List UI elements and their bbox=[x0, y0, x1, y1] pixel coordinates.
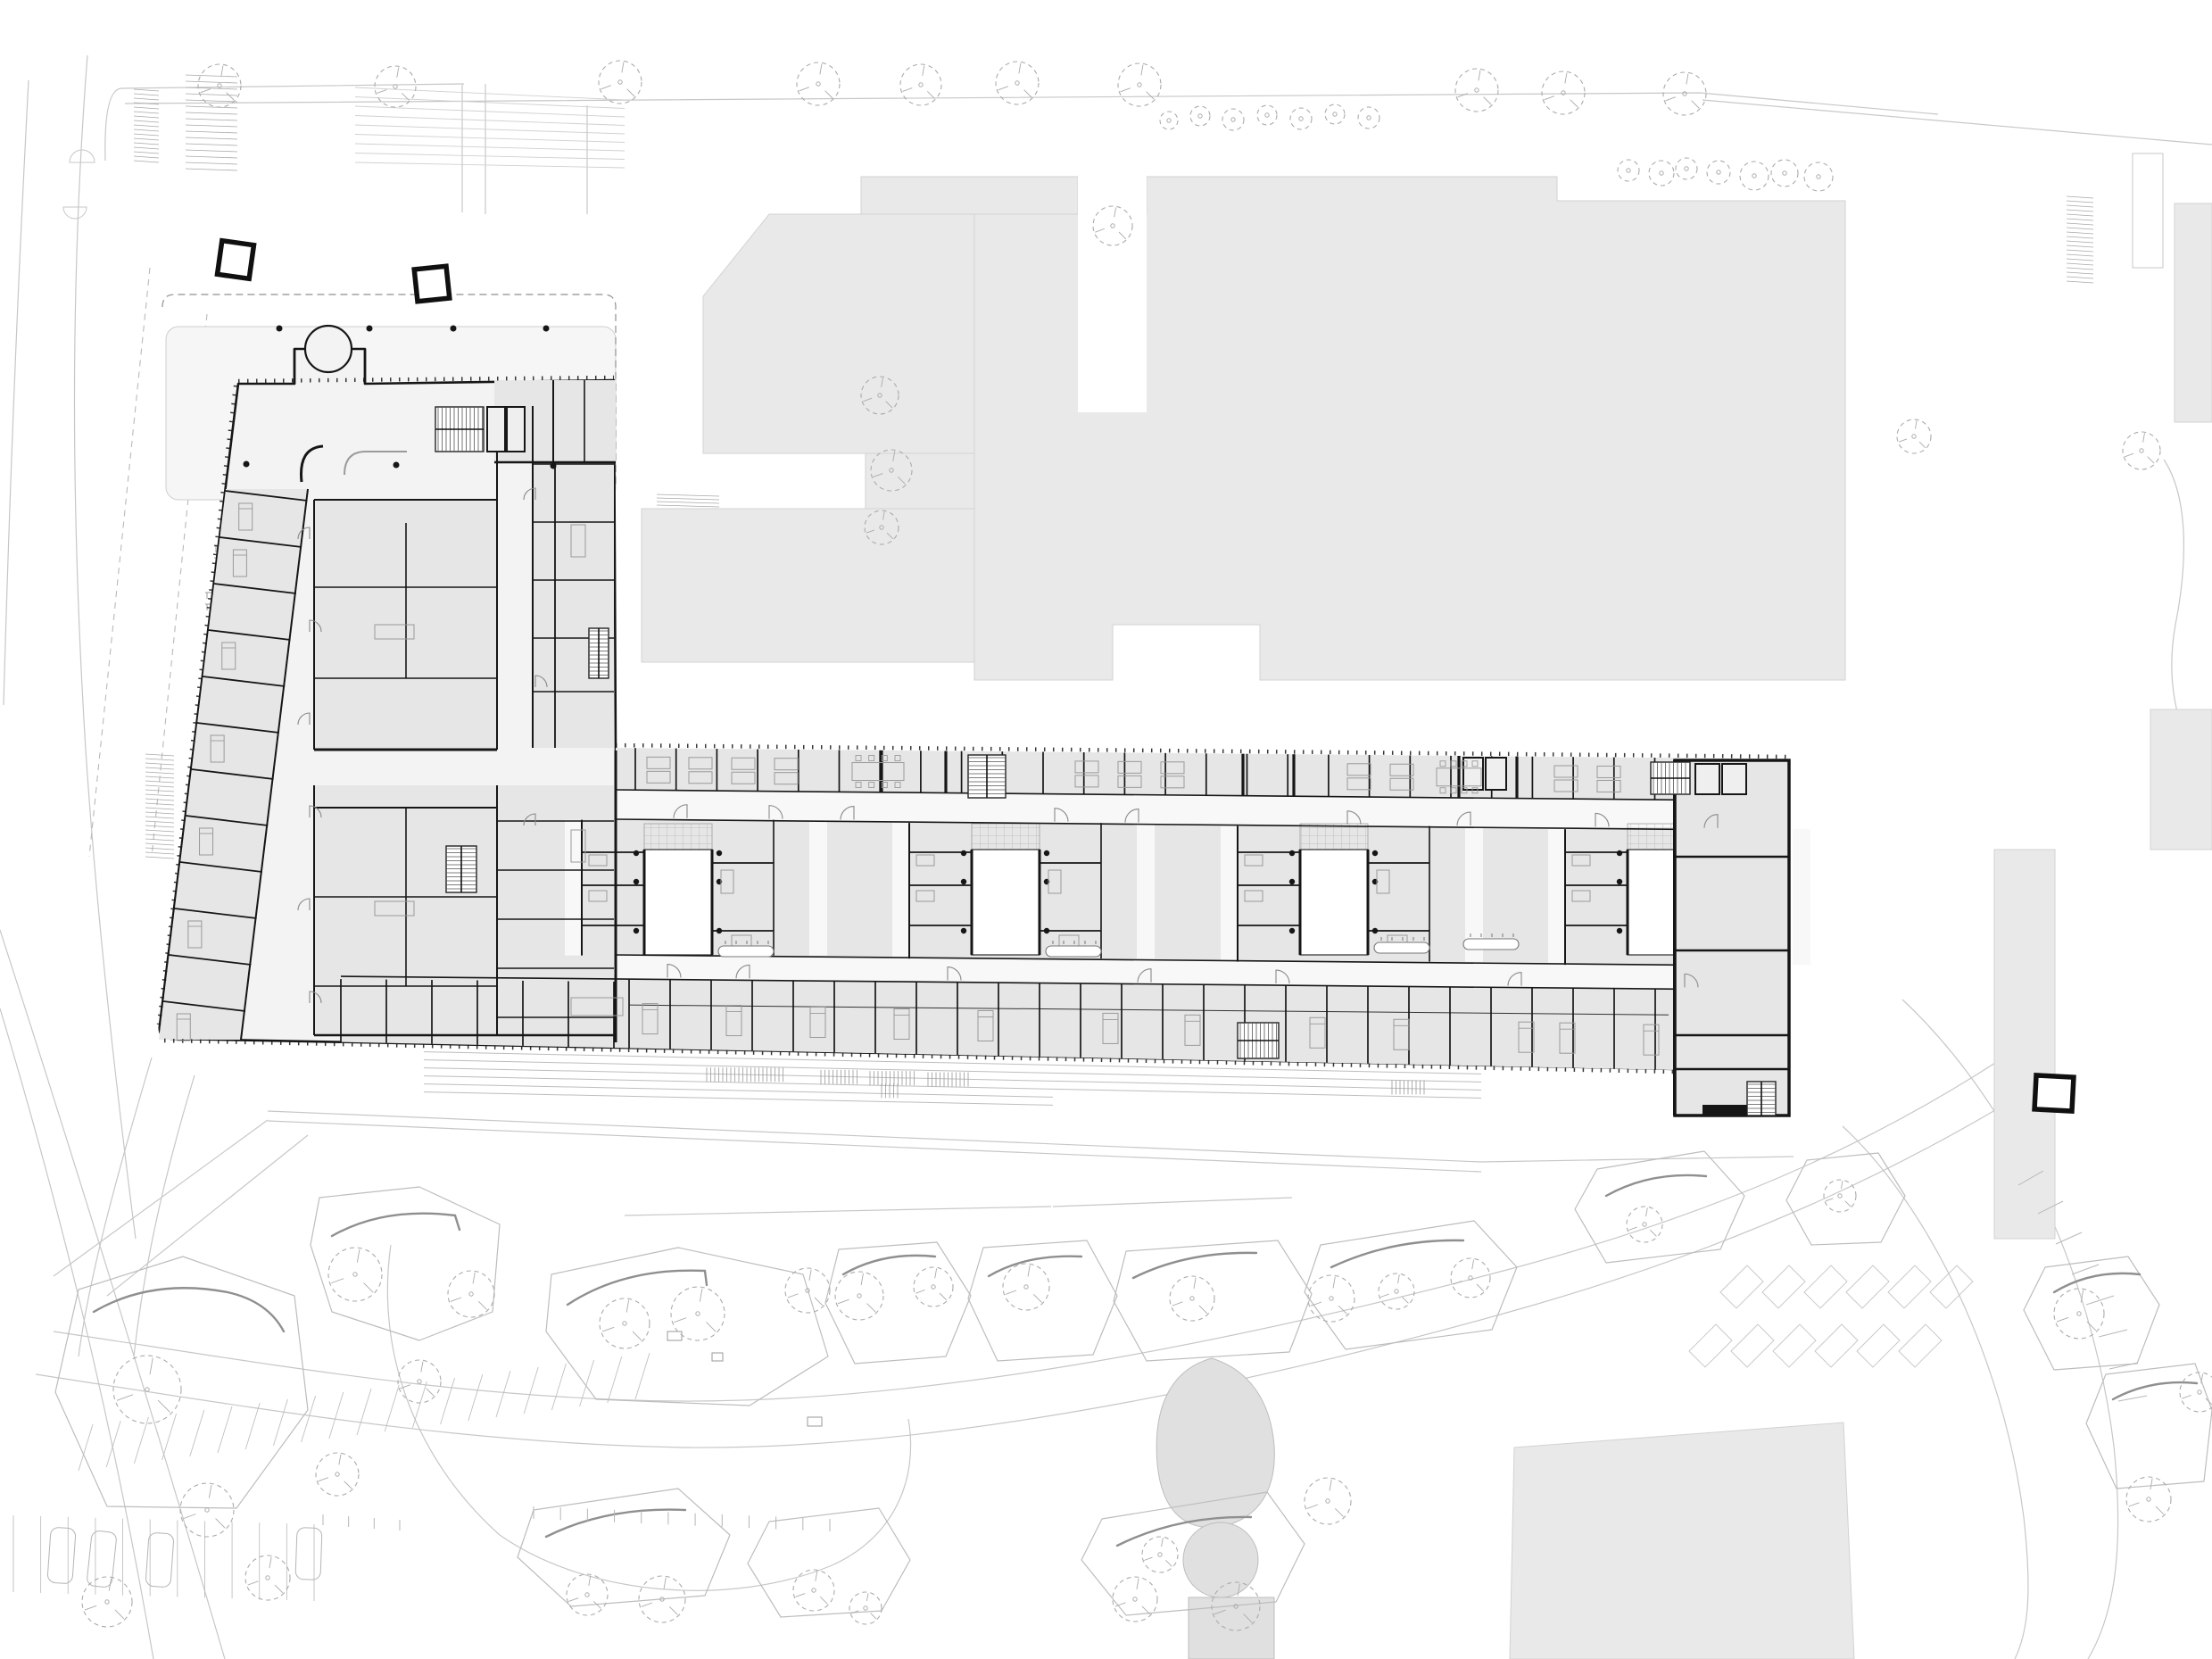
pergola-hatch bbox=[355, 87, 625, 168]
tree-icon bbox=[198, 64, 241, 107]
tree-small-icon bbox=[1649, 161, 1674, 186]
tree-small-icon bbox=[1257, 105, 1277, 125]
ramp-hatch bbox=[134, 89, 159, 162]
elevator bbox=[1695, 764, 1719, 794]
elevator bbox=[1486, 758, 1506, 790]
tree-small-icon bbox=[1222, 109, 1244, 130]
tree-icon bbox=[82, 1577, 132, 1627]
corridor-planter bbox=[1374, 942, 1429, 953]
tree-icon bbox=[398, 1360, 441, 1403]
tree-icon bbox=[849, 1592, 882, 1624]
tree-icon bbox=[900, 64, 941, 105]
tree-small-icon bbox=[1740, 162, 1769, 190]
pavilion-structure bbox=[414, 266, 450, 302]
ramp-hatch bbox=[657, 494, 719, 510]
tree-small-icon bbox=[1618, 160, 1639, 181]
tree-icon bbox=[1305, 1478, 1351, 1524]
corridor-planter bbox=[718, 946, 774, 957]
tree-icon bbox=[2126, 1477, 2171, 1522]
tree-icon bbox=[2123, 432, 2160, 469]
tree-icon bbox=[2054, 1289, 2104, 1339]
tree-small-icon bbox=[1358, 107, 1379, 129]
tree-small-icon bbox=[1290, 108, 1312, 129]
tree-icon bbox=[1824, 1180, 1856, 1212]
tree-icon bbox=[1542, 71, 1585, 114]
tree-icon bbox=[1897, 419, 1931, 453]
tree-small-icon bbox=[1325, 104, 1345, 124]
stair bbox=[435, 407, 484, 452]
site-structure bbox=[2133, 153, 2163, 268]
site-plan-canvas bbox=[0, 0, 2212, 1659]
entrance-vestibule bbox=[305, 326, 352, 372]
tree-icon bbox=[1118, 63, 1161, 106]
pavilion-structure bbox=[2034, 1075, 2074, 1111]
tree-icon bbox=[2180, 1373, 2212, 1412]
stair bbox=[1651, 762, 1690, 794]
tree-icon bbox=[245, 1555, 290, 1600]
tree-small-icon bbox=[1190, 106, 1210, 126]
tree-small-icon bbox=[1160, 112, 1178, 129]
tree-icon bbox=[1308, 1275, 1355, 1322]
tree-icon bbox=[1003, 1264, 1049, 1310]
elevator bbox=[1722, 764, 1746, 794]
tree-icon bbox=[671, 1287, 725, 1340]
tree-small-icon bbox=[1707, 161, 1730, 184]
tree-icon bbox=[1379, 1273, 1414, 1309]
tree-icon bbox=[600, 1298, 650, 1348]
tree-icon bbox=[567, 1574, 608, 1615]
landscape-islands bbox=[55, 1151, 2212, 1617]
ramp-hatch bbox=[145, 754, 174, 859]
tree-icon bbox=[793, 1570, 834, 1611]
tree-icon bbox=[328, 1248, 382, 1301]
tree-icon bbox=[448, 1271, 494, 1317]
tree-icon bbox=[1142, 1537, 1178, 1572]
tree-icon bbox=[835, 1272, 883, 1320]
stair bbox=[589, 628, 609, 678]
tree-icon bbox=[113, 1356, 181, 1423]
tree-icon bbox=[180, 1483, 234, 1537]
ramp-hatch bbox=[2067, 196, 2093, 283]
elevator bbox=[1463, 758, 1483, 790]
corridor-planter bbox=[1463, 939, 1519, 950]
elevator bbox=[507, 407, 525, 452]
elevator bbox=[487, 407, 505, 452]
tree-icon bbox=[914, 1267, 953, 1306]
stair bbox=[968, 755, 1006, 798]
tree-icon bbox=[1455, 69, 1498, 112]
tree-small-icon bbox=[1676, 158, 1697, 179]
tree-icon bbox=[1663, 72, 1706, 115]
corridor-planter bbox=[1046, 946, 1101, 957]
pavilion-structure bbox=[218, 241, 254, 279]
stair bbox=[1238, 1023, 1279, 1058]
site-plan-page bbox=[0, 0, 2212, 1659]
tree-icon bbox=[1451, 1258, 1490, 1298]
tree-small-icon bbox=[1771, 160, 1798, 187]
tree-icon bbox=[1170, 1276, 1214, 1321]
tree-icon bbox=[316, 1453, 359, 1496]
tree-icon bbox=[599, 61, 642, 104]
tree-icon bbox=[375, 66, 416, 107]
stair bbox=[1747, 1082, 1776, 1116]
ramp-hatch bbox=[186, 75, 237, 170]
tree-small-icon bbox=[1804, 162, 1833, 191]
bus-stop-symbol bbox=[63, 207, 87, 219]
bus-stop-symbol bbox=[70, 150, 95, 162]
stair bbox=[446, 846, 476, 892]
